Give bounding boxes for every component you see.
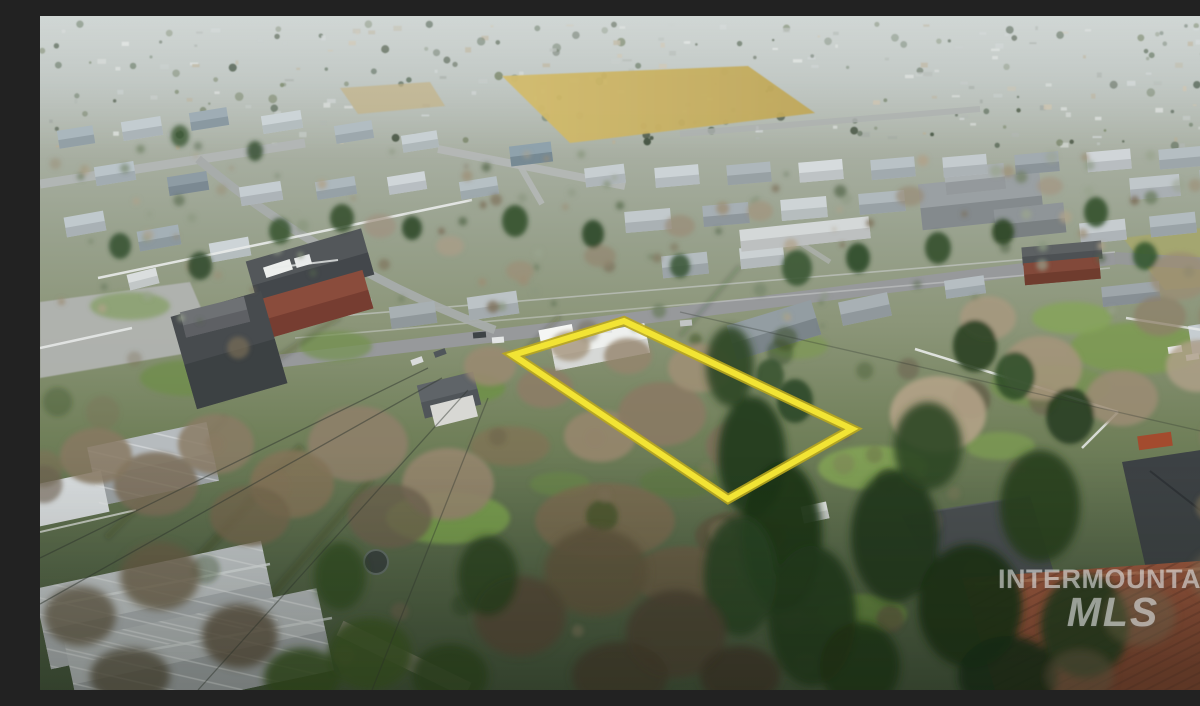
photo-shape xyxy=(309,269,317,277)
photo-shape xyxy=(562,204,569,211)
tree-canopy xyxy=(436,236,464,256)
photo-shape xyxy=(785,314,792,321)
photo-shape xyxy=(197,318,202,323)
photo-shape xyxy=(120,163,130,173)
photo-shape xyxy=(784,172,789,177)
photo-shape xyxy=(820,292,828,300)
photo-shape xyxy=(458,217,467,226)
photo-shape xyxy=(192,279,197,284)
photo-shape xyxy=(229,166,233,170)
photo-shape xyxy=(1059,211,1071,223)
photo-shape xyxy=(1144,191,1157,204)
photo-shape xyxy=(250,287,255,292)
photo-shape xyxy=(50,158,61,169)
photo-shape xyxy=(523,150,531,158)
photo-shape xyxy=(1084,186,1094,196)
photo-shape xyxy=(534,248,543,257)
tree-canopy xyxy=(506,261,534,281)
photo-shape xyxy=(1085,160,1095,170)
photo-shape xyxy=(81,166,86,171)
photo-shape xyxy=(551,301,557,307)
tree-canopy xyxy=(171,125,189,147)
bottom-vignette xyxy=(40,456,1200,690)
tree-canopy xyxy=(670,254,690,278)
photo-shape xyxy=(351,196,357,202)
photo-shape xyxy=(293,213,298,218)
photo-shape xyxy=(603,181,611,189)
tree-canopy xyxy=(782,250,812,286)
photo-shape xyxy=(652,304,666,318)
tree-canopy xyxy=(925,232,951,264)
photo-shape xyxy=(820,324,824,328)
photo-shape xyxy=(227,337,249,359)
tree-canopy xyxy=(896,186,924,206)
photo-shape xyxy=(1081,153,1089,161)
photo-shape xyxy=(1037,259,1048,270)
car xyxy=(680,319,692,326)
photo-shape xyxy=(470,200,481,211)
photo-shape xyxy=(462,170,473,181)
photo-shape xyxy=(897,358,919,380)
photo-shape xyxy=(143,291,152,300)
tree-canopy xyxy=(604,338,652,374)
photo-shape xyxy=(1078,229,1088,239)
photo-shape xyxy=(98,304,107,313)
tree-canopy xyxy=(247,141,263,161)
photo-shape xyxy=(187,213,196,222)
photo-shape xyxy=(58,298,65,305)
photo-shape xyxy=(616,201,624,209)
photo-shape xyxy=(275,173,280,178)
photo-shape xyxy=(389,149,394,154)
photo-shape xyxy=(533,264,540,271)
car xyxy=(473,331,486,338)
photo-shape xyxy=(438,228,445,235)
tree-canopy xyxy=(846,243,870,273)
photo-shape xyxy=(136,145,145,154)
photo-shape xyxy=(317,179,327,189)
tree-canopy xyxy=(1134,296,1186,336)
photo-shape xyxy=(213,271,222,280)
tree-canopy xyxy=(1046,388,1094,444)
tree-canopy xyxy=(1084,197,1108,227)
photo-shape xyxy=(1021,209,1031,219)
photo-shape xyxy=(133,198,140,205)
photo-shape xyxy=(856,362,873,379)
photo-shape xyxy=(568,188,577,197)
photo-shape xyxy=(1108,306,1116,314)
photo-shape xyxy=(647,254,653,260)
photo-shape xyxy=(990,165,1002,177)
tree-canopy xyxy=(1086,370,1158,426)
photo-shape xyxy=(43,387,73,417)
aerial-photo: INTERMOUNTAIN MLS xyxy=(40,16,1200,690)
photo-shape xyxy=(272,244,283,255)
photo-shape xyxy=(818,300,823,305)
photo-shape xyxy=(1096,253,1106,263)
photo-shape xyxy=(715,228,722,235)
photo-shape xyxy=(173,233,179,239)
tree-canopy xyxy=(992,219,1014,245)
photo-shape xyxy=(297,252,303,258)
photo-shape xyxy=(1015,171,1027,183)
tree-canopy xyxy=(269,218,291,244)
photo-shape xyxy=(178,315,185,322)
tree-canopy xyxy=(402,216,422,240)
tree-canopy xyxy=(953,320,997,372)
photo-shape xyxy=(518,193,528,203)
photo-shape xyxy=(1172,179,1186,193)
tree-canopy xyxy=(665,215,695,237)
photo-shape xyxy=(1002,165,1014,177)
photo-shape xyxy=(297,220,309,232)
photo-shape xyxy=(832,227,836,231)
tree-canopy xyxy=(109,233,131,259)
photo-shape xyxy=(652,253,662,263)
tree-canopy xyxy=(582,220,604,248)
tree-canopy xyxy=(188,252,212,280)
photo-shape xyxy=(834,185,846,197)
photo-shape xyxy=(173,195,184,206)
photo-shape xyxy=(490,194,502,206)
tree-canopy xyxy=(502,205,528,237)
photo-shape xyxy=(544,156,549,161)
photo-shape xyxy=(772,184,780,192)
photo-shape xyxy=(1130,196,1139,205)
aerial-photo-scene xyxy=(40,16,1200,690)
photo-shape xyxy=(917,155,929,167)
photo-shape xyxy=(478,278,486,286)
photo-shape xyxy=(194,142,202,150)
photo-shape xyxy=(577,150,585,158)
photo-shape xyxy=(89,239,93,243)
car xyxy=(492,336,504,343)
photo-shape xyxy=(101,283,108,290)
tree-canopy xyxy=(995,352,1035,400)
photo-shape xyxy=(531,287,538,294)
photo-shape xyxy=(194,153,199,158)
photo-shape xyxy=(612,175,617,180)
photo-shape xyxy=(216,184,227,195)
photo-shape xyxy=(1098,242,1105,249)
tree-canopy xyxy=(747,201,773,221)
tree-canopy xyxy=(1133,242,1157,270)
photo-shape xyxy=(1032,302,1112,334)
tree-canopy xyxy=(330,204,354,232)
photo-shape xyxy=(378,259,389,270)
tree-canopy xyxy=(1037,177,1063,195)
photo-shape xyxy=(464,164,468,168)
photo-shape xyxy=(398,296,404,302)
photo-shape xyxy=(1045,151,1058,164)
photo-shape xyxy=(913,280,922,289)
photo-shape xyxy=(837,207,843,213)
photo-shape xyxy=(147,212,151,216)
photo-shape xyxy=(77,173,85,181)
photo-shape xyxy=(754,283,767,296)
tree-canopy xyxy=(584,245,616,267)
photo-shape xyxy=(489,428,507,446)
tree-canopy xyxy=(364,214,396,238)
photo-shape xyxy=(840,242,845,247)
photo-shape xyxy=(1146,150,1156,160)
photo-shape xyxy=(127,351,142,366)
photo-shape xyxy=(143,229,154,240)
photo-shape xyxy=(866,219,874,227)
photo-shape xyxy=(487,301,499,313)
photo-shape xyxy=(670,243,679,252)
photo-shape xyxy=(86,396,120,430)
photo-shape xyxy=(961,211,967,217)
photo-shape xyxy=(482,163,491,172)
photo-shape xyxy=(716,202,729,215)
photo-shape xyxy=(1038,241,1048,251)
